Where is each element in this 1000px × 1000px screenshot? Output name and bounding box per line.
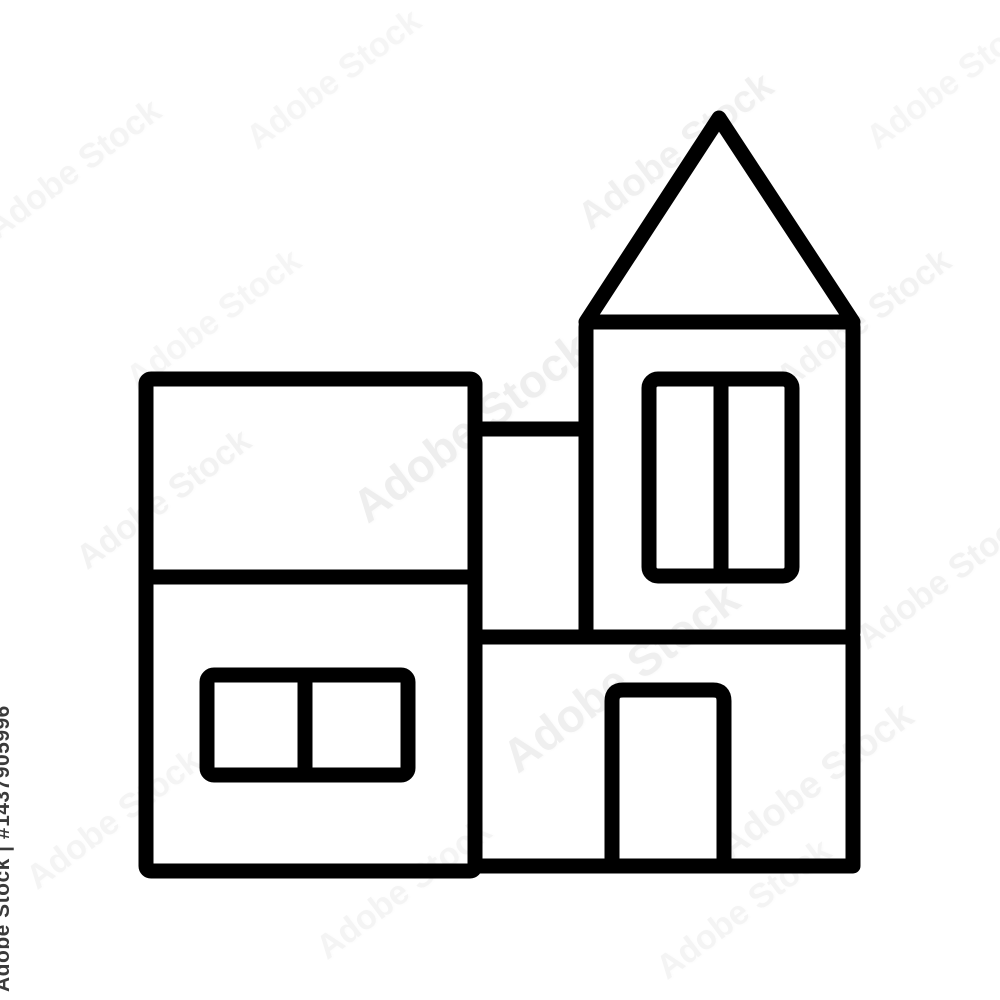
annex-outline	[477, 637, 853, 866]
house-with-tower-icon	[0, 0, 1000, 1000]
main-building	[146, 379, 475, 871]
stock-image-canvas: Adobe Stock Adobe Stock Adobe Stock Adob…	[0, 0, 1000, 1000]
watermark-credit: Adobe Stock | #1437905996	[0, 705, 15, 992]
tower-roof-triangle	[586, 118, 853, 322]
icon-strokes	[146, 118, 853, 871]
door	[612, 690, 724, 864]
